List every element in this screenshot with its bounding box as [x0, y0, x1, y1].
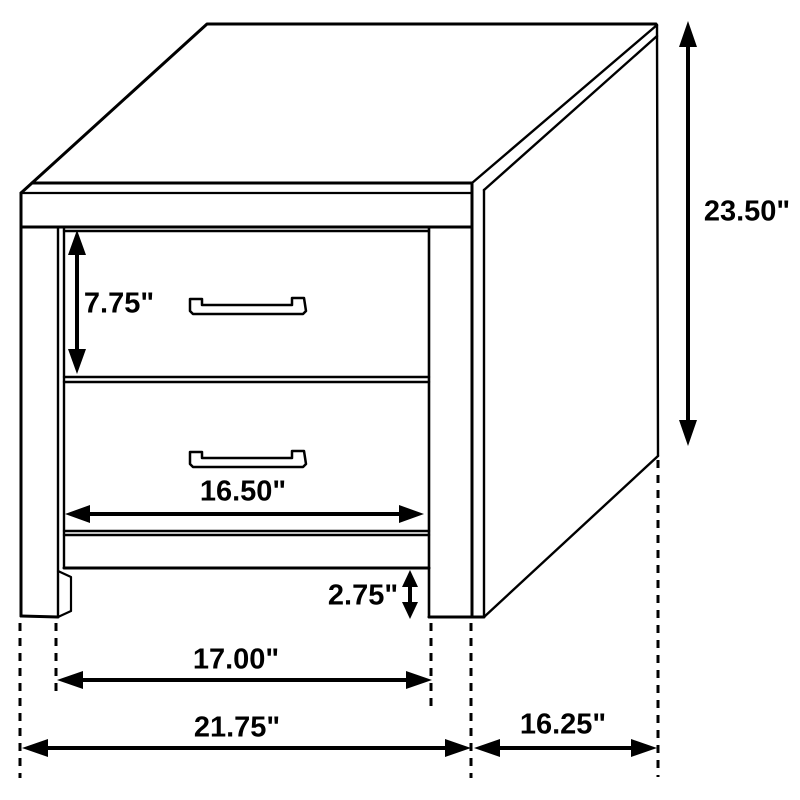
leg-spacing-label: 17.00" [193, 644, 279, 677]
top-right-edge [472, 25, 657, 190]
floor-clearance-arrow [402, 570, 418, 619]
left-leg-side-face [58, 571, 71, 617]
drawer-1-handle [190, 298, 306, 314]
left-leg-bottom-edge [21, 616, 58, 617]
side-panel-back-edge [657, 25, 658, 456]
drawer-2-handle [190, 451, 306, 467]
overall-depth-label: 16.25" [520, 709, 606, 742]
floor-clearance-label: 2.75" [328, 580, 398, 613]
overall-width-label: 21.75" [194, 712, 280, 745]
dimension-arrows [22, 21, 697, 757]
side-panel-bottom-edge [484, 456, 658, 617]
furniture-dimension-diagram: 23.50" 7.75" 16.50" 2.75" 17.00" 21.75" … [0, 0, 800, 800]
drawer-width-label: 16.50" [200, 476, 286, 509]
left-stile-inner-edge [58, 227, 64, 617]
nightstand-outline [21, 24, 658, 617]
drawer-2-bottom-edge [64, 531, 429, 535]
overall-height-label: 23.50" [704, 196, 790, 229]
drawer-height-label: 7.75" [84, 288, 154, 321]
overall-height-arrow [679, 21, 697, 446]
overall-depth-arrow [474, 739, 657, 757]
diagram-canvas [0, 0, 800, 800]
drawer-divider-rail [64, 377, 429, 382]
